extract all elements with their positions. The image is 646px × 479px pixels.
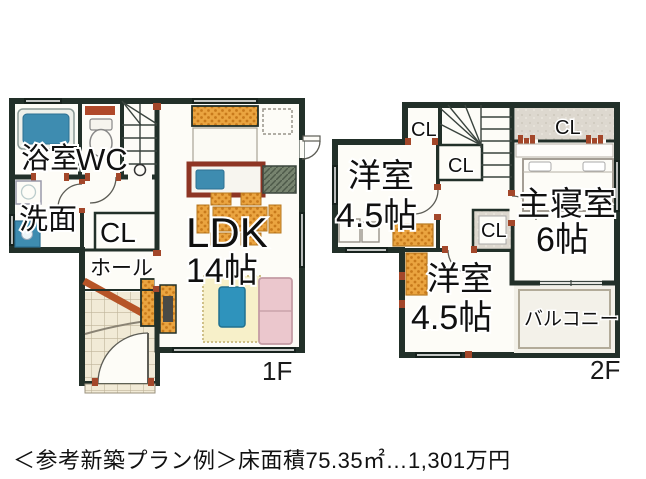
room-label-west-a-size: 4.5帖 (336, 197, 417, 235)
kitchen-cupboard (192, 106, 258, 126)
stove-unit (263, 166, 296, 193)
kitchen-island (193, 128, 257, 162)
floorplan-2f: 洋室 4.5帖 CL CL CL 主寝室 6帖 CL 洋室 4.5帖 バルコニー… (335, 105, 620, 385)
room-label-ldk: LDK (186, 209, 268, 256)
room-label-closet-top: CL (411, 119, 437, 141)
room-label-west-b-size: 4.5帖 (411, 299, 492, 337)
floor-label-2f: 2F (590, 355, 620, 385)
room-label-west-a: 洋室 (348, 157, 414, 194)
room-label-balcony: バルコニー (524, 309, 619, 330)
room-label-west-b: 洋室 (427, 260, 493, 297)
room-label-closet-master: CL (555, 117, 581, 139)
room-label-closet-1f: CL (100, 217, 136, 248)
room-label-closet-mid: CL (448, 155, 474, 177)
kitchen-sink (196, 170, 224, 189)
room-label-bath: 浴室 (21, 142, 79, 175)
room-label-hall: ホール (90, 257, 153, 280)
caption: ＜参考新築プラン例＞床面積75.35㎡…1,301万円 (13, 443, 511, 475)
room-label-master-size: 6帖 (536, 221, 589, 259)
refrigerator (263, 109, 292, 134)
room-label-washroom: 洗面 (19, 203, 77, 236)
bed-west-b (406, 253, 427, 295)
low-table (219, 287, 245, 327)
room-label-master: 主寝室 (517, 185, 616, 222)
room-label-wc: WC (76, 142, 128, 177)
floor-label-1f: 1F (262, 356, 292, 386)
shoe-cabinet (141, 279, 155, 326)
entrance-genkan (84, 279, 155, 393)
floorplan-page: 浴室 WC 洗面 CL ホール LDK 14帖 1F (0, 0, 646, 479)
room-label-ldk-size: 14帖 (186, 252, 258, 290)
floorplan-1f: 浴室 WC 洗面 CL ホール LDK 14帖 1F (12, 101, 320, 393)
floorplan-image: 浴室 WC 洗面 CL ホール LDK 14帖 1F (0, 0, 646, 479)
room-label-closet-lower: CL (481, 220, 507, 242)
